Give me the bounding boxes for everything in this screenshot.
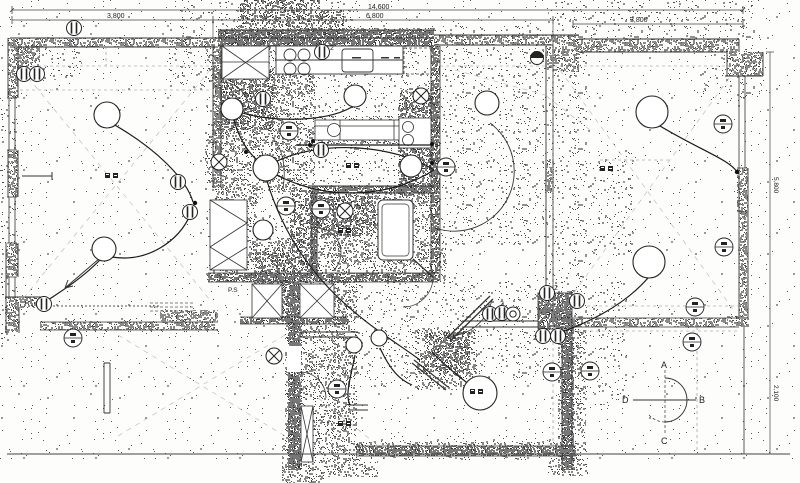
svg-text:2,100: 2,100 [772,385,779,402]
svg-text:C: C [661,436,668,446]
svg-text:A: A [661,360,667,370]
svg-text:14,600: 14,600 [368,4,390,11]
svg-text:3,800: 3,800 [107,13,125,20]
svg-text:6,800: 6,800 [366,13,384,20]
svg-text:2: 2 [500,301,504,308]
svg-text:2: 2 [554,285,558,292]
svg-text:2: 2 [533,335,537,342]
svg-text:3,800: 3,800 [630,17,648,24]
svg-text:5,800: 5,800 [772,177,779,194]
svg-text:2: 2 [330,45,334,52]
svg-text:D: D [622,395,629,405]
svg-text:B: B [699,395,705,405]
svg-text:P.S: P.S [228,287,238,294]
